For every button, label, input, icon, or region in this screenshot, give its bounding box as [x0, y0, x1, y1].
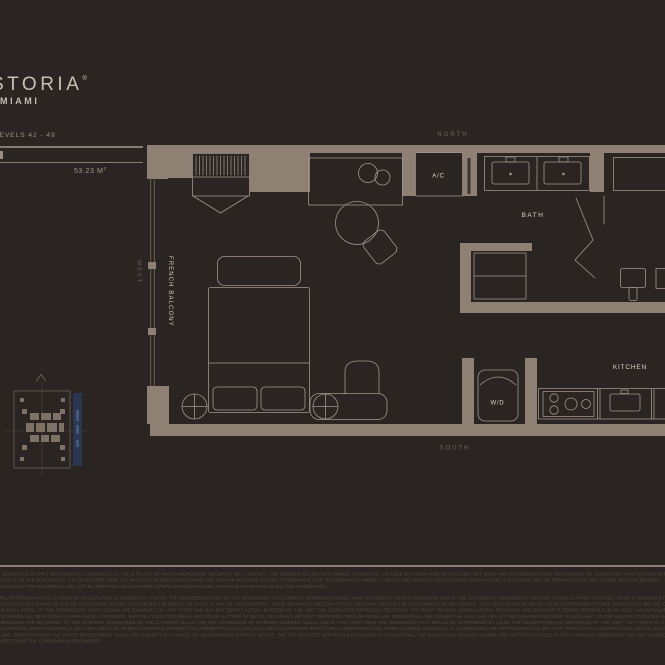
closet-double-doors [193, 196, 248, 213]
room-label-bath: BATH [522, 212, 545, 219]
compass-west-label: WEST [136, 260, 142, 284]
dining-chair [361, 228, 399, 266]
closet-hangers-icon [196, 156, 245, 175]
bath-cabinet [614, 158, 665, 191]
keyplan-highlight-marks [76, 410, 79, 447]
closet [193, 154, 250, 214]
disclaimer-paragraph-1: IS DEVELOPED BY PRH INTERNATIONAL HOLDIN… [0, 571, 665, 589]
cooktop-icon [543, 392, 594, 417]
room-label-wd: W/D [490, 401, 504, 407]
north-arrow-icon [37, 375, 46, 382]
walls [147, 145, 665, 436]
decor-bowl-icon [375, 170, 390, 185]
french-balcony-glazing [151, 178, 155, 386]
room-label-ac: A/C [432, 174, 444, 180]
toilet-icon [621, 269, 665, 301]
pillow-icon [213, 387, 257, 410]
kitchen-counter [539, 389, 665, 420]
disclaimer-divider [0, 565, 665, 567]
bath-vanity [485, 157, 590, 191]
sink-icon [544, 162, 581, 184]
disclaimer-paragraph-2: ORAL REPRESENTATIONS CANNOT BE RELIED UP… [0, 595, 665, 644]
balcony-mullions [148, 262, 156, 335]
french-balcony-label: FRENCH BALCONY [167, 256, 173, 327]
faucet-icon [559, 157, 568, 162]
kitchen-sink-icon [610, 390, 640, 411]
armchair [345, 361, 379, 394]
linen-closet [474, 253, 526, 299]
room-label-kitchen: KITCHEN [613, 364, 647, 371]
bed-bench [218, 257, 301, 286]
compass-north-label: NORTH [437, 132, 468, 138]
pillow-icon [261, 387, 305, 410]
floorplan-sheet: { "header": { "brand_fragment": "STORIA"… [0, 0, 665, 665]
decor-bowl-icon [359, 164, 378, 183]
nightstand-icon [313, 394, 338, 419]
disclaimer: IS DEVELOPED BY PRH INTERNATIONAL HOLDIN… [0, 571, 665, 650]
compass-south-label: SOUTH [440, 446, 471, 452]
keyplan-core [20, 398, 65, 461]
keyplan [4, 375, 88, 477]
faucet-icon [506, 157, 515, 162]
bed [209, 288, 310, 413]
nightstand-icon [182, 394, 207, 419]
console-table [309, 158, 403, 205]
shower [575, 196, 604, 278]
washer-dryer-icon [478, 370, 518, 421]
dining-table [336, 202, 379, 245]
